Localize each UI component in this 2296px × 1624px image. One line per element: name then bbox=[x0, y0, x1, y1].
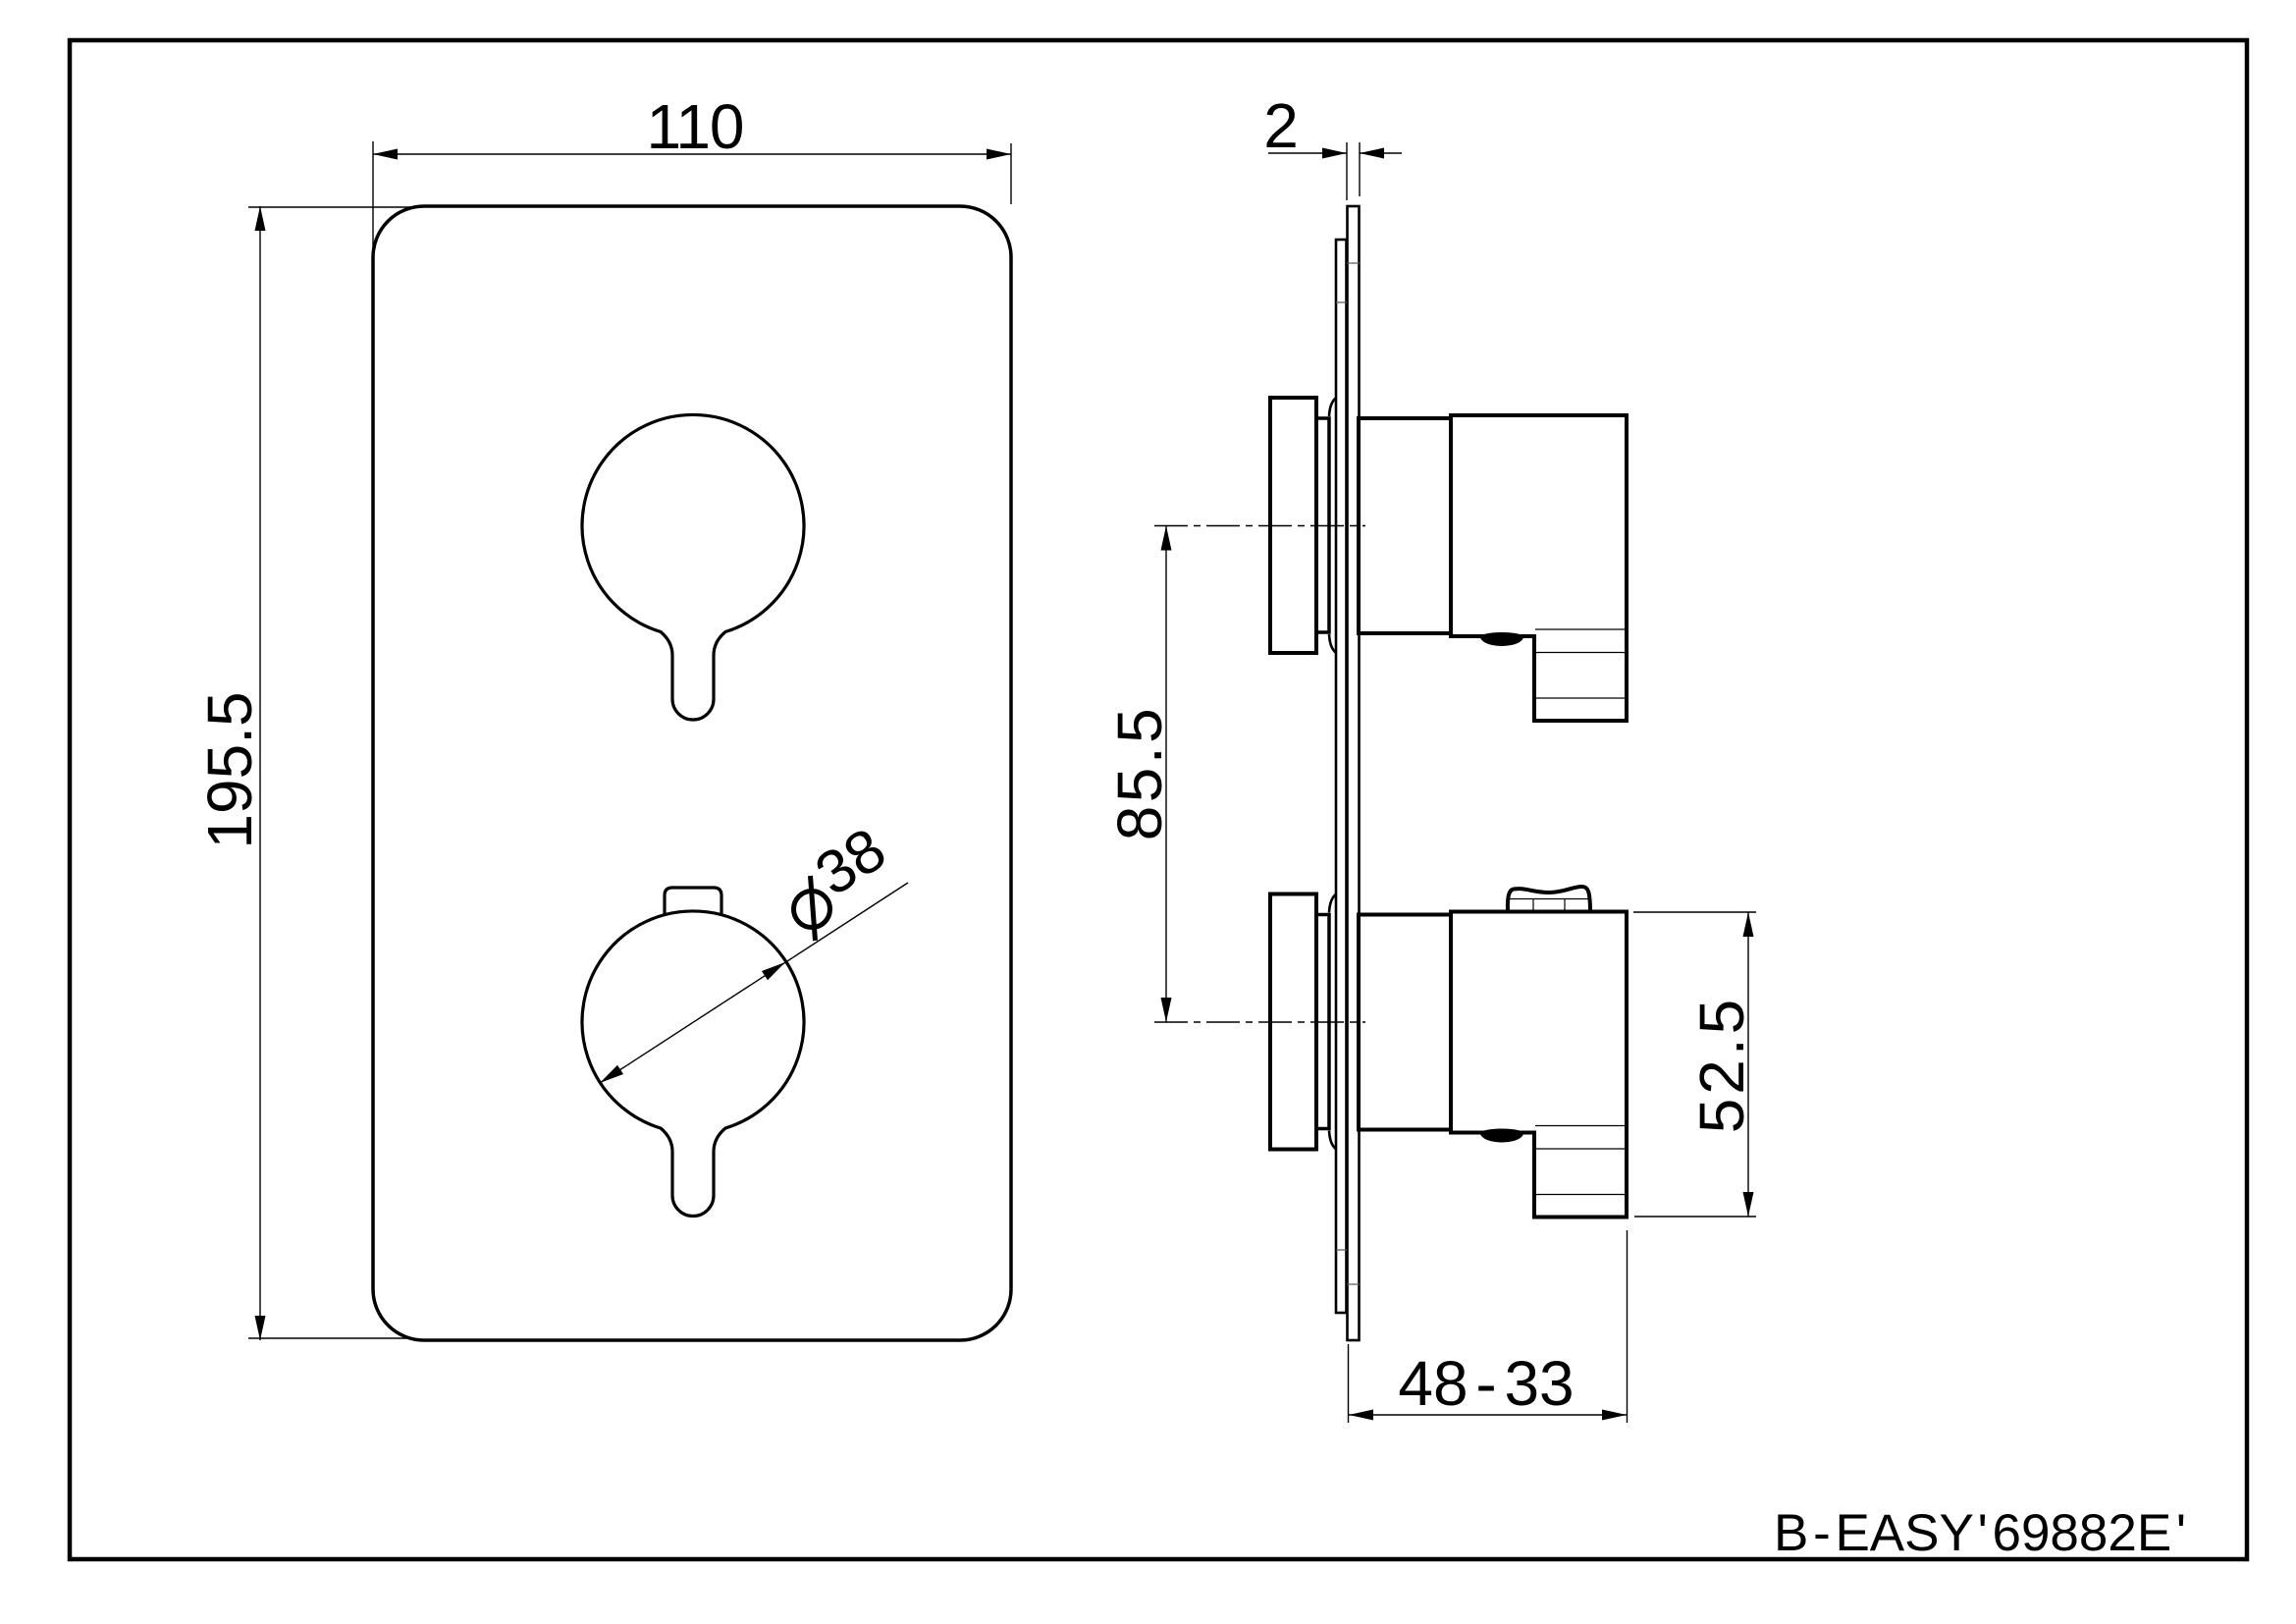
svg-text:B - EASY ' 69882E ': B - EASY ' 69882E ' bbox=[1774, 1504, 2186, 1562]
svg-text:85.5: 85.5 bbox=[1104, 705, 1175, 841]
svg-text:2: 2 bbox=[1263, 90, 1299, 161]
svg-text:195.5: 195.5 bbox=[194, 691, 265, 848]
svg-text:52.5: 52.5 bbox=[1686, 996, 1757, 1134]
svg-text:110: 110 bbox=[646, 91, 743, 162]
svg-text:48 - 33: 48 - 33 bbox=[1398, 1348, 1574, 1419]
